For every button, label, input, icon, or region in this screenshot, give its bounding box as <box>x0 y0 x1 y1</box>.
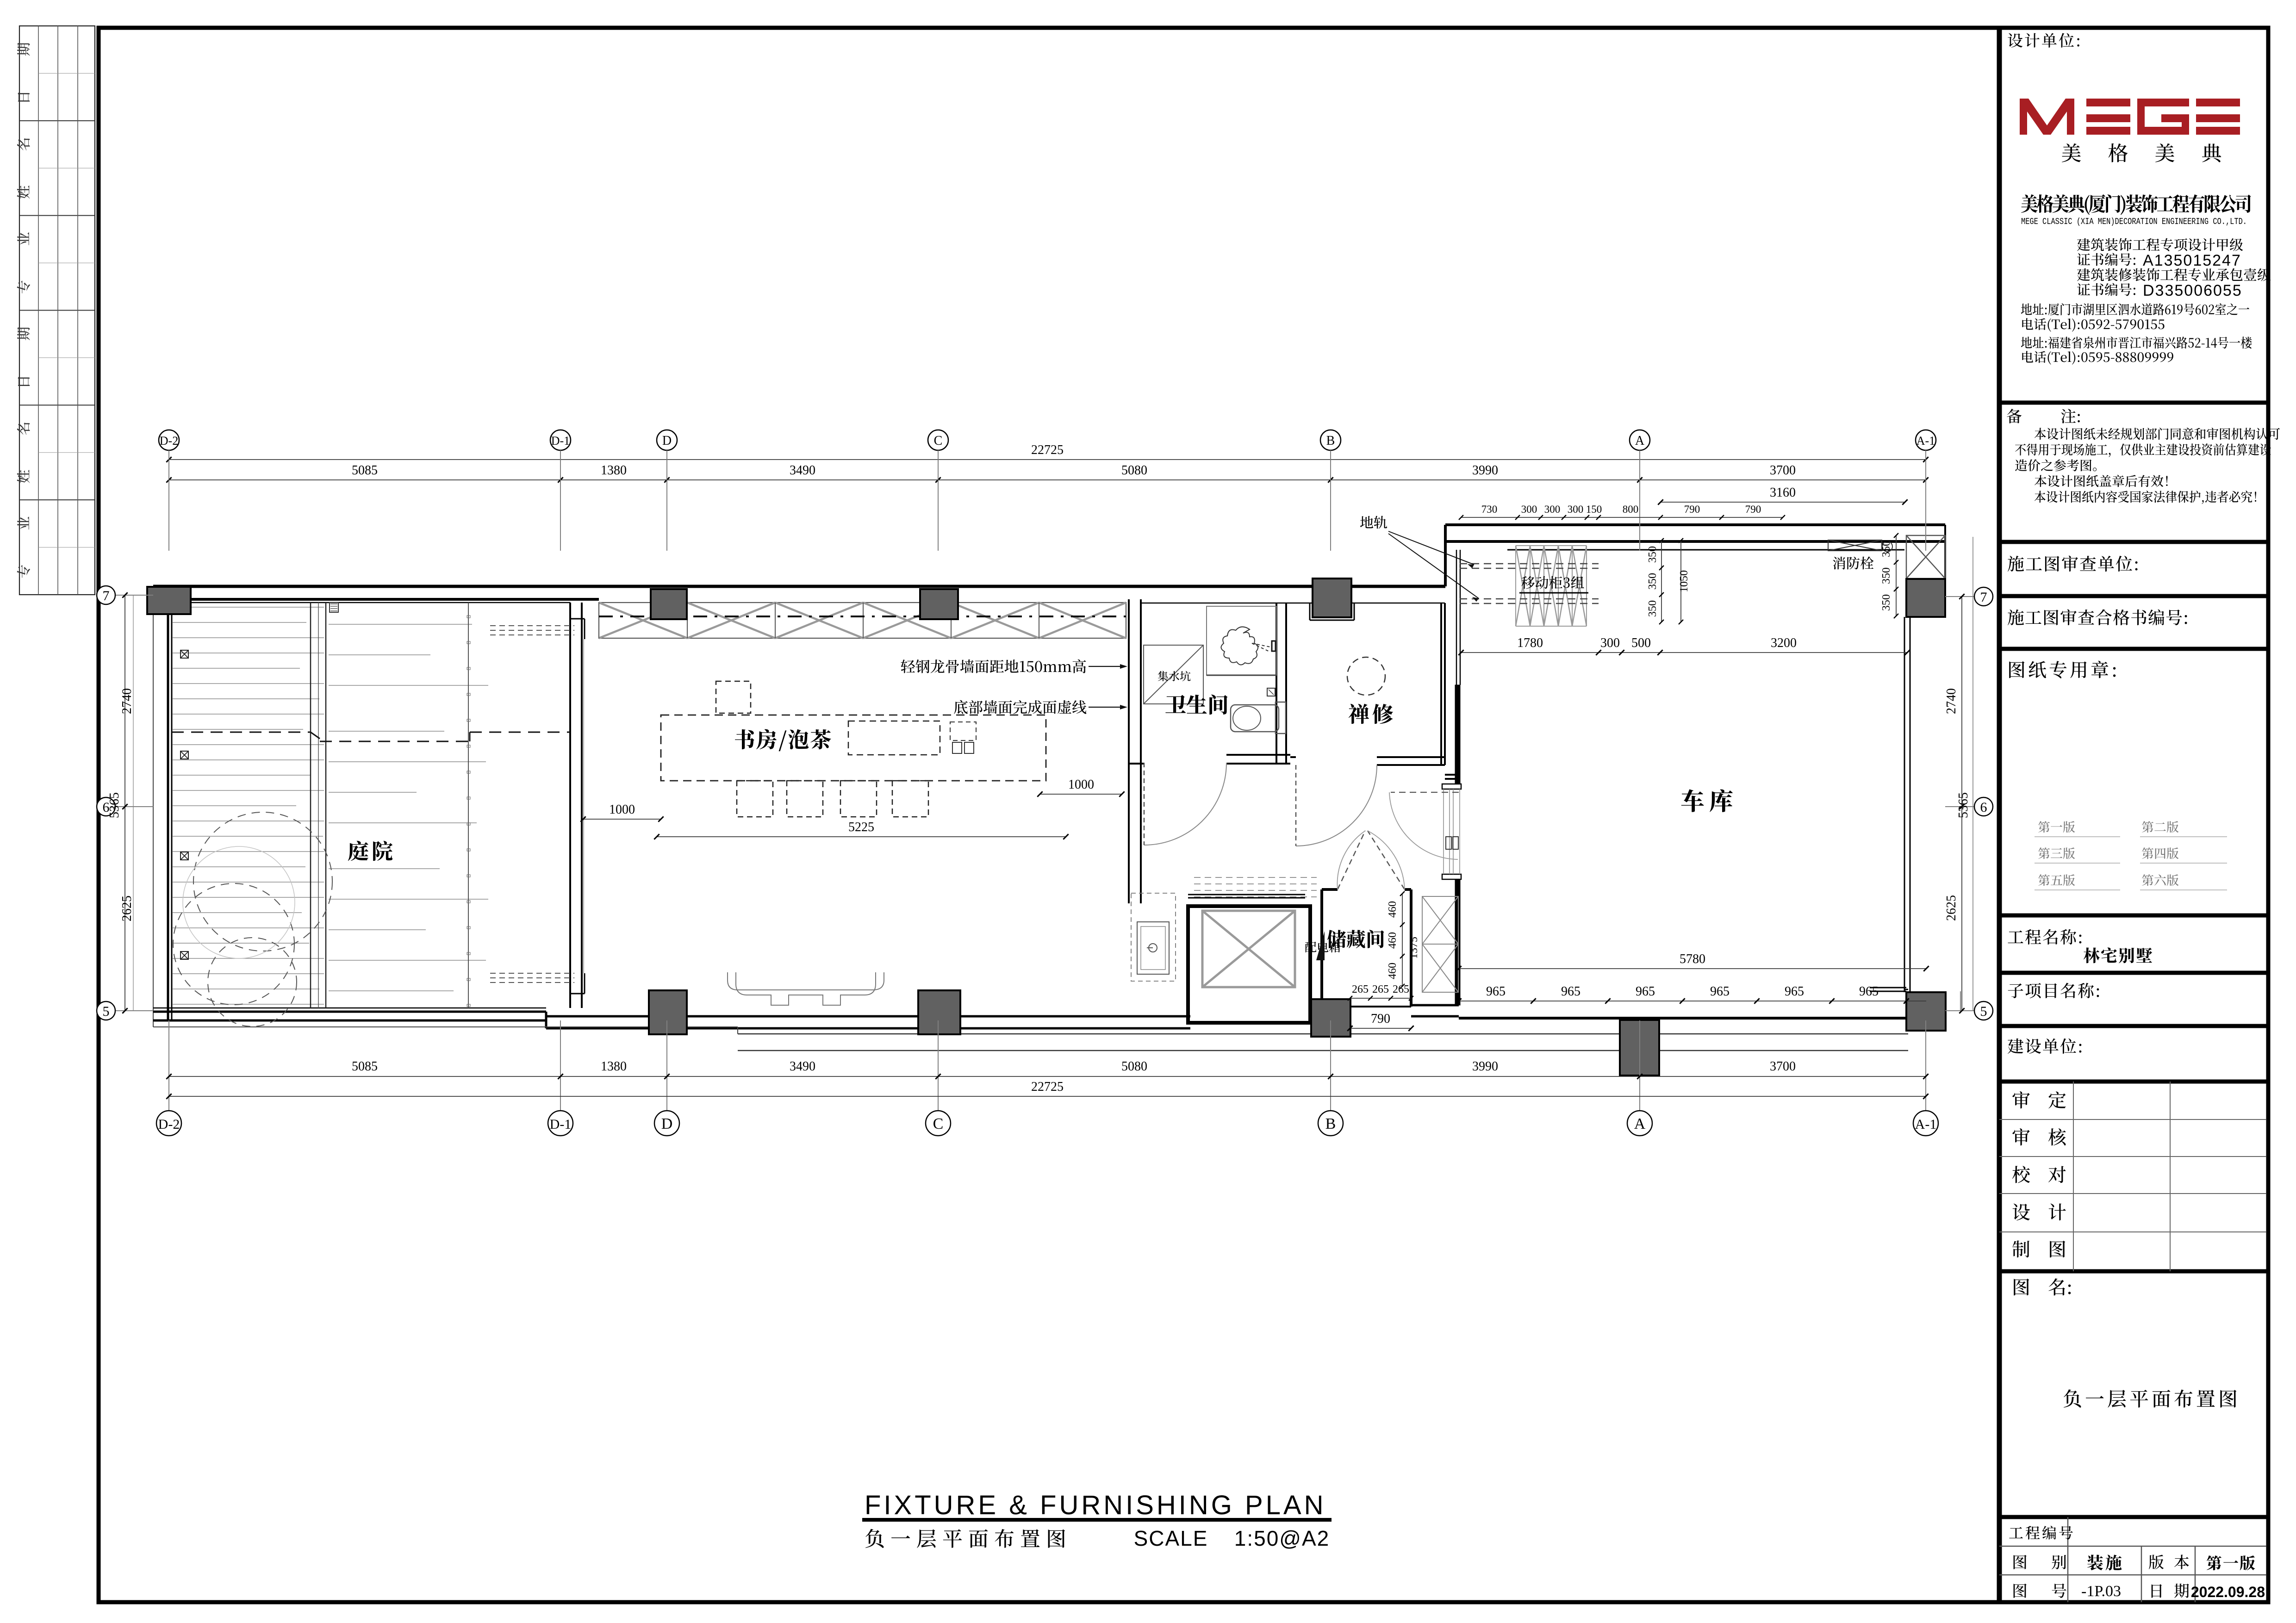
svg-text:350: 350 <box>1647 600 1659 617</box>
svg-text:D-2: D-2 <box>160 434 178 448</box>
svg-text:-1P.03: -1P.03 <box>2081 1583 2121 1600</box>
svg-text:790: 790 <box>1684 504 1700 515</box>
svg-text:2625: 2625 <box>1944 895 1959 921</box>
svg-text:3160: 3160 <box>1770 485 1796 500</box>
svg-text:350: 350 <box>1647 573 1659 590</box>
svg-text:1050: 1050 <box>1678 570 1690 592</box>
svg-text:300: 300 <box>1600 636 1620 650</box>
svg-text:D-1: D-1 <box>551 434 570 448</box>
svg-text:965: 965 <box>1785 984 1804 999</box>
svg-text:1375: 1375 <box>1408 937 1420 959</box>
svg-text:B: B <box>1326 434 1335 448</box>
svg-text:1000: 1000 <box>1068 777 1094 792</box>
svg-text:965: 965 <box>1561 984 1580 999</box>
svg-text:265: 265 <box>1393 983 1409 995</box>
svg-text:A-1: A-1 <box>1916 434 1935 448</box>
svg-text:SCALE: SCALE <box>1134 1526 1208 1550</box>
svg-text:D: D <box>662 434 672 448</box>
svg-text:5085: 5085 <box>352 463 378 478</box>
svg-text:C: C <box>933 1115 944 1132</box>
svg-text:1780: 1780 <box>1517 636 1543 650</box>
svg-text:150: 150 <box>1586 504 1602 515</box>
svg-text:1:50@A2: 1:50@A2 <box>1234 1526 1330 1550</box>
svg-text:350: 350 <box>1880 567 1892 584</box>
svg-text:MEGE CLASSIC (XIA MEN)DECORATI: MEGE CLASSIC (XIA MEN)DECORATION ENGINEE… <box>2021 217 2247 227</box>
svg-text:A: A <box>1635 434 1645 448</box>
svg-text:3700: 3700 <box>1770 463 1796 478</box>
svg-text:C: C <box>934 434 943 448</box>
svg-text:22725: 22725 <box>1031 443 1064 457</box>
svg-text:D335006055: D335006055 <box>2143 282 2242 299</box>
svg-text:460: 460 <box>1387 901 1399 918</box>
svg-text:730: 730 <box>1481 504 1498 515</box>
svg-text:350: 350 <box>1880 594 1892 611</box>
svg-text:A135015247: A135015247 <box>2143 252 2241 269</box>
svg-text:5085: 5085 <box>352 1059 378 1074</box>
svg-text:5080: 5080 <box>1121 1059 1147 1074</box>
svg-text:3200: 3200 <box>1771 636 1797 650</box>
svg-text:5: 5 <box>1980 1004 1987 1019</box>
svg-text:460: 460 <box>1387 963 1399 979</box>
svg-text:300: 300 <box>1568 504 1584 515</box>
svg-text:7: 7 <box>1980 590 1987 605</box>
svg-text:800: 800 <box>1623 504 1639 515</box>
svg-text:5780: 5780 <box>1680 952 1705 966</box>
svg-text:965: 965 <box>1710 984 1730 999</box>
svg-text:6: 6 <box>1980 800 1987 815</box>
svg-text:965: 965 <box>1486 984 1506 999</box>
svg-text:5080: 5080 <box>1121 463 1147 478</box>
svg-text:A: A <box>1634 1115 1646 1132</box>
svg-text:2740: 2740 <box>120 688 134 714</box>
svg-text:265: 265 <box>1372 983 1389 995</box>
svg-text:300: 300 <box>1521 504 1537 515</box>
svg-text:790: 790 <box>1745 504 1761 515</box>
svg-text:965: 965 <box>1636 984 1655 999</box>
svg-text:350: 350 <box>1880 541 1892 557</box>
svg-text:1380: 1380 <box>601 463 627 478</box>
svg-text:5365: 5365 <box>107 792 122 818</box>
svg-text:FIXTURE & FURNISHING PLAN: FIXTURE & FURNISHING PLAN <box>865 1490 1326 1520</box>
svg-text:3990: 3990 <box>1472 1059 1498 1074</box>
svg-text:265: 265 <box>1352 983 1369 995</box>
svg-text:500: 500 <box>1631 636 1651 650</box>
svg-text:22725: 22725 <box>1031 1080 1064 1094</box>
svg-text:5365: 5365 <box>1956 792 1971 818</box>
svg-text:5: 5 <box>103 1004 110 1019</box>
svg-text:3990: 3990 <box>1472 463 1498 478</box>
svg-text:1000: 1000 <box>609 802 635 817</box>
svg-text:460: 460 <box>1387 932 1399 949</box>
svg-text:1380: 1380 <box>601 1059 627 1074</box>
svg-text:2625: 2625 <box>120 895 134 921</box>
svg-text:B: B <box>1325 1115 1336 1132</box>
svg-text:7: 7 <box>103 588 110 603</box>
svg-text:965: 965 <box>1859 984 1879 999</box>
svg-text:2740: 2740 <box>1944 688 1959 714</box>
svg-text:3490: 3490 <box>790 463 815 478</box>
svg-text:350: 350 <box>1647 546 1659 563</box>
svg-text:D-1: D-1 <box>550 1117 572 1132</box>
svg-text:300: 300 <box>1544 504 1561 515</box>
svg-text:3490: 3490 <box>790 1059 815 1074</box>
svg-text:A-1: A-1 <box>1915 1117 1937 1132</box>
svg-text:3700: 3700 <box>1770 1059 1796 1074</box>
svg-text:D: D <box>661 1115 673 1132</box>
svg-text:790: 790 <box>1371 1012 1390 1026</box>
svg-text:D-2: D-2 <box>158 1117 180 1132</box>
svg-text:2022.09.28: 2022.09.28 <box>2191 1584 2265 1600</box>
svg-text:5225: 5225 <box>848 820 874 834</box>
